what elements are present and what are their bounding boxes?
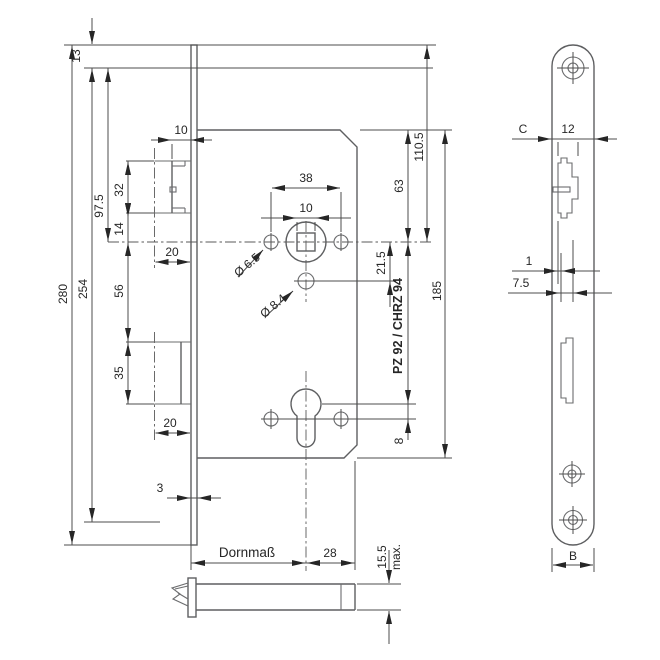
dim-latch-bar-note: max. [389,544,403,570]
dim-latch-to-axis: 14 [112,222,126,236]
dim-bolt-throw: 20 [163,416,177,430]
dim-latch-protrusion: 10 [174,123,188,137]
dim-follower-holes-span: 38 [299,171,313,185]
dim-plate-total: 280 [56,284,70,304]
dim-axis-to-case-back: 28 [323,546,337,560]
lock-technical-drawing: 13 280 254 97.5 32 14 56 35 21.5 63 PZ 9… [0,0,660,660]
faceplate-bolt-cutout [561,338,573,403]
dim-axis-to-bolt: 56 [112,284,126,298]
latch-bar-side-view [172,550,401,644]
faceplate-bottom-screw-holes [559,461,587,534]
dim-square-follower: 10 [299,201,313,215]
dim-below-axis-hole-dia: Ø 8.4 [257,291,289,321]
dim-cyl-axis-to-screw: 8 [392,437,406,444]
main-view: 13 280 254 97.5 32 14 56 35 21.5 63 PZ 9… [56,18,452,644]
dim-plate-width-ref: B [569,549,577,563]
faceplate-top-screw-hole [557,52,589,84]
dim-offset: 7.5 [513,276,530,290]
dim-backset-label: Dornmaß [219,545,275,560]
dim-latch-bar-height: 15.5 [375,545,389,569]
faceplate-dimensions [508,139,617,572]
dim-hole-below-axis: 21.5 [374,251,388,275]
dim-top-hole-offset: 13 [69,49,83,63]
dim-edge-ref: C [519,122,528,136]
dim-plate-top-to-axis: 110.5 [412,132,426,161]
dim-hole-to-axis: 97.5 [92,194,106,218]
dim-latch-height: 32 [112,183,126,197]
dim-latch-cutout-width: 12 [561,122,575,136]
latch-bar-collar [188,578,196,617]
faceplate-latch-cutout [553,158,578,218]
dim-case-height: 185 [430,281,444,301]
dimension-arrows [72,20,445,544]
dim-plate-thickness: 3 [157,481,164,495]
faceplate-edge [191,45,197,545]
dim-latch-throw: 20 [165,245,179,259]
dim-bolt-height: 35 [112,366,126,380]
dim-hole-spacing: 254 [76,279,90,299]
drawing-svg: 13 280 254 97.5 32 14 56 35 21.5 63 PZ 9… [0,0,660,660]
dim-case-top-to-axis: 63 [392,179,406,193]
dim-step: 1 [526,254,533,268]
faceplate-front-view: C 12 1 7.5 B [508,45,617,572]
dim-cylinder-spec: PZ 92 / CHRZ 94 [391,278,405,374]
